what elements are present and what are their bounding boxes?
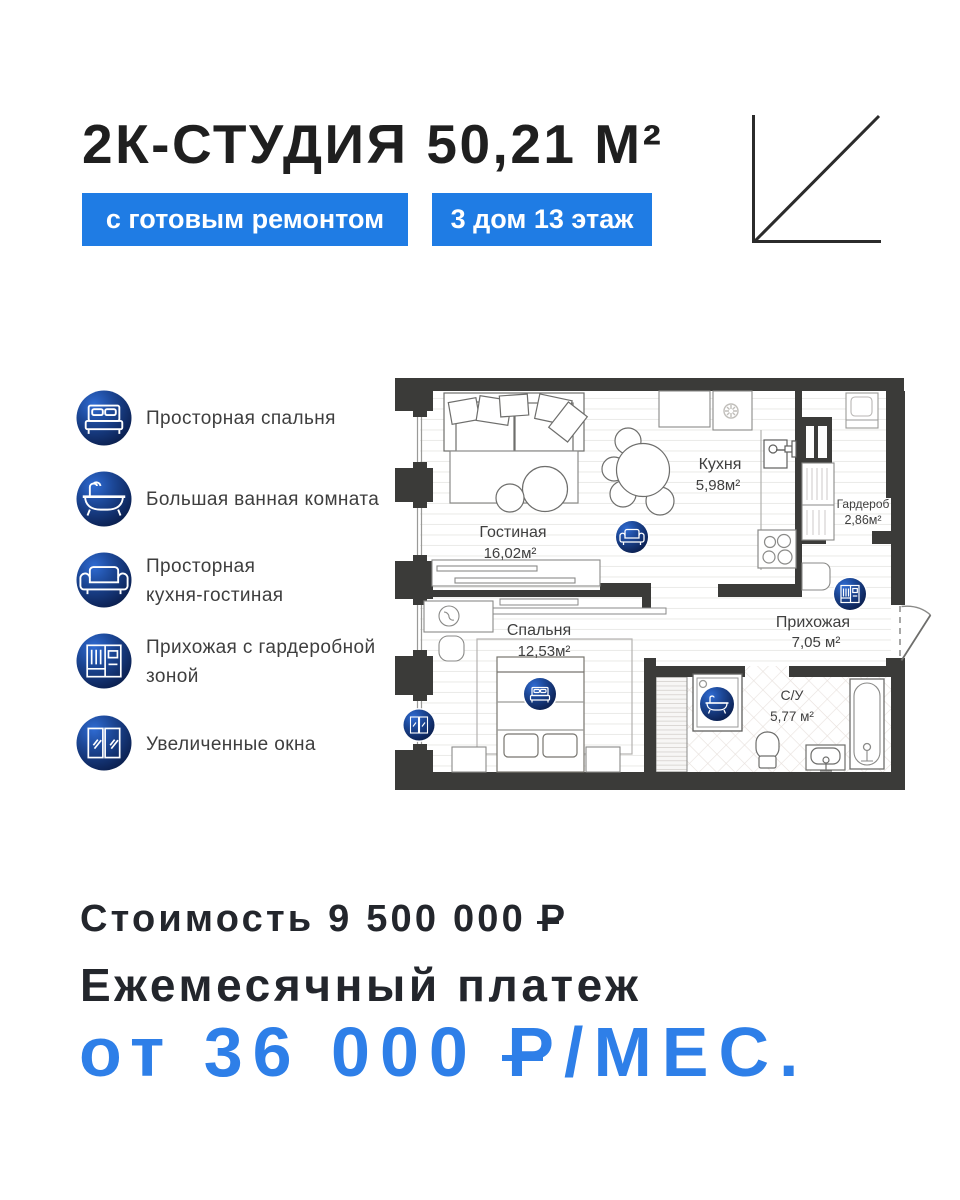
svg-text:12,53м²: 12,53м² <box>518 643 571 660</box>
svg-text:С/У: С/У <box>781 687 804 703</box>
svg-text:7,05 м²: 7,05 м² <box>792 634 841 651</box>
svg-text:Спальня: Спальня <box>507 622 571 639</box>
svg-text:Гостиная: Гостиная <box>479 524 546 541</box>
svg-text:5,98м²: 5,98м² <box>696 477 741 494</box>
svg-text:5,77 м²: 5,77 м² <box>770 709 814 724</box>
svg-text:16,02м²: 16,02м² <box>484 545 537 562</box>
svg-text:Кухня: Кухня <box>699 456 742 473</box>
svg-text:Гардероб: Гардероб <box>837 497 890 511</box>
svg-text:2,86м²: 2,86м² <box>844 513 881 527</box>
svg-text:Прихожая: Прихожая <box>776 614 850 631</box>
